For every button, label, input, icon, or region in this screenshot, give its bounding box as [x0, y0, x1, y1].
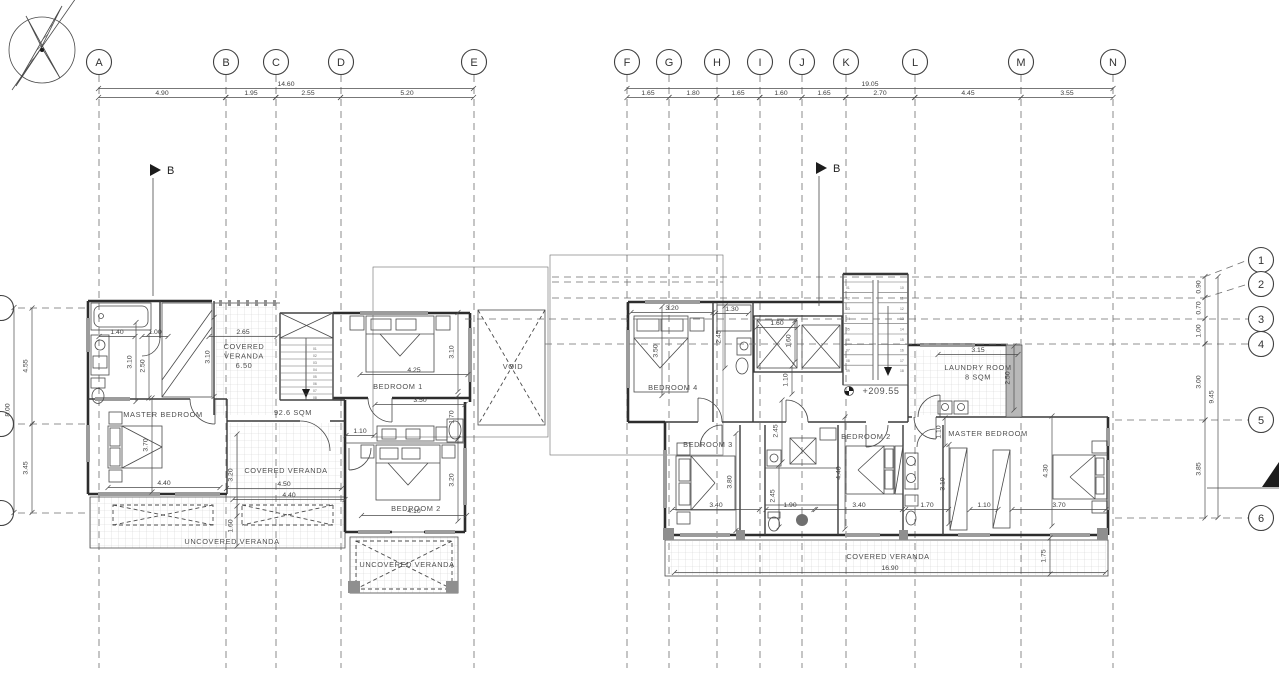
- svg-text:17: 17: [900, 359, 904, 363]
- dimension: 1.10: [344, 428, 377, 438]
- svg-text:3.15: 3.15: [971, 347, 984, 354]
- dimension: 1.10: [783, 364, 795, 397]
- svg-text:2.70: 2.70: [873, 90, 886, 97]
- svg-text:B: B: [833, 163, 840, 175]
- svg-text:BEDROOM 3: BEDROOM 3: [683, 440, 733, 449]
- room-label: BEDROOM 2: [391, 504, 441, 513]
- bathroom-fixtures: [91, 303, 151, 404]
- svg-text:4.30: 4.30: [1043, 464, 1050, 477]
- svg-text:1.75: 1.75: [1041, 549, 1048, 562]
- svg-text:16: 16: [900, 348, 904, 352]
- level-marker: [845, 387, 854, 396]
- svg-text:07: 07: [313, 389, 317, 393]
- svg-text:3.50: 3.50: [413, 397, 426, 404]
- svg-text:M: M: [1016, 57, 1025, 69]
- dimension: 2.45: [770, 463, 782, 530]
- room-label: +209.55: [863, 386, 900, 396]
- svg-text:N: N: [1109, 57, 1117, 69]
- svg-text:13: 13: [900, 317, 904, 321]
- north-arrow-icon: [9, 0, 76, 90]
- dimension: 2.45: [773, 398, 785, 465]
- svg-text:3.85: 3.85: [1196, 462, 1203, 475]
- svg-text:04: 04: [846, 317, 850, 321]
- svg-text:BEDROOM 2: BEDROOM 2: [391, 504, 441, 513]
- dimension: 4.90: [96, 90, 228, 100]
- svg-text:14: 14: [900, 328, 904, 332]
- grid-row-3: 3: [465, 307, 1274, 332]
- section-marker-B: B: [150, 164, 174, 296]
- grid-row-left-1: [0, 412, 88, 437]
- dimension: 1.65: [800, 90, 849, 100]
- svg-text:3.20: 3.20: [228, 468, 235, 481]
- svg-text:0.90: 0.90: [1196, 280, 1203, 293]
- svg-text:LAUNDRY ROOM: LAUNDRY ROOM: [944, 363, 1011, 372]
- dimension: 3.85: [1196, 418, 1208, 521]
- svg-text:03: 03: [313, 361, 317, 365]
- svg-text:15: 15: [900, 338, 904, 342]
- svg-text:3.40: 3.40: [852, 502, 865, 509]
- svg-text:4.40: 4.40: [836, 466, 843, 479]
- central-bath-fixtures: [767, 428, 836, 531]
- dimension: 1.10: [968, 502, 1001, 512]
- svg-text:+209.55: +209.55: [863, 386, 900, 396]
- floor-plan-canvas: ABCDEFGHIJKLMN12345614.604.901.952.555.2…: [0, 0, 1280, 675]
- dimension: 1.10: [936, 416, 948, 449]
- room-label: BEDROOM 2: [841, 432, 891, 441]
- svg-text:1.00: 1.00: [1196, 324, 1203, 337]
- covered-veranda-mid-floor: [229, 423, 343, 501]
- svg-text:02: 02: [313, 354, 317, 358]
- svg-text:02: 02: [846, 296, 850, 300]
- svg-text:J: J: [799, 57, 805, 69]
- room-label: BEDROOM 3: [683, 440, 733, 449]
- dimension: 1.70: [903, 502, 951, 512]
- svg-text:MASTER BEDROOM: MASTER BEDROOM: [948, 429, 1027, 438]
- dimension: 3.55: [1019, 90, 1116, 100]
- svg-text:1.60: 1.60: [770, 320, 783, 327]
- svg-text:1.10: 1.10: [936, 425, 943, 438]
- master-closets: [950, 448, 1010, 530]
- svg-text:4.90: 4.90: [155, 90, 168, 97]
- svg-text:I: I: [758, 57, 761, 69]
- svg-text:09: 09: [846, 369, 850, 373]
- svg-text:0.70: 0.70: [1196, 301, 1203, 314]
- grid-bubble-E: E: [462, 50, 487, 75]
- section-marker-B: B: [816, 162, 840, 306]
- room-label: MASTER BEDROOM: [948, 429, 1027, 438]
- svg-text:BEDROOM 2: BEDROOM 2: [841, 432, 891, 441]
- svg-text:06: 06: [846, 338, 850, 342]
- svg-text:BEDROOM 1: BEDROOM 1: [373, 382, 423, 391]
- grid-bubble-H: H: [705, 50, 730, 75]
- svg-text:05: 05: [313, 375, 317, 379]
- dimension: 3.40: [813, 502, 905, 512]
- grid-row-2: 2: [552, 272, 1274, 299]
- svg-text:3.40: 3.40: [709, 502, 722, 509]
- svg-text:11: 11: [900, 296, 904, 300]
- dimension: 3.70: [1010, 502, 1109, 512]
- svg-text:B: B: [167, 165, 174, 177]
- svg-text:3.10: 3.10: [127, 355, 134, 368]
- bed-bedroom1: [350, 316, 450, 372]
- svg-text:01: 01: [846, 286, 850, 290]
- svg-text:3.20: 3.20: [665, 305, 678, 312]
- svg-text:2.45: 2.45: [770, 489, 777, 502]
- svg-text:1.60: 1.60: [786, 334, 793, 347]
- dimension: 1.60: [758, 90, 805, 100]
- svg-text:H: H: [713, 57, 721, 69]
- svg-text:12: 12: [900, 307, 904, 311]
- svg-text:4.55: 4.55: [23, 359, 30, 372]
- svg-text:1.10: 1.10: [353, 428, 366, 435]
- staircase: [843, 274, 908, 385]
- room-label: UNCOVERED VERANDA: [184, 537, 279, 546]
- svg-text:9.45: 9.45: [1209, 390, 1216, 403]
- grid-bubble-J: J: [790, 50, 815, 75]
- svg-text:COVERED: COVERED: [224, 342, 265, 351]
- svg-text:2.55: 2.55: [301, 90, 314, 97]
- svg-text:05: 05: [846, 328, 850, 332]
- dimension: 2.55: [273, 90, 343, 100]
- svg-text:4: 4: [1258, 339, 1264, 351]
- svg-text:1.65: 1.65: [817, 90, 830, 97]
- svg-text:1.10: 1.10: [783, 373, 790, 386]
- dimension: 2.50: [140, 332, 152, 401]
- svg-text:4.25: 4.25: [407, 367, 420, 374]
- svg-text:3.20: 3.20: [449, 473, 456, 486]
- bed-bedroom2: [361, 445, 455, 500]
- grid-row-1: 1: [552, 248, 1274, 278]
- dimension: 0.70: [1196, 295, 1208, 321]
- svg-text:07: 07: [846, 348, 850, 352]
- svg-text:1.65: 1.65: [731, 90, 744, 97]
- svg-text:4.40: 4.40: [157, 480, 170, 487]
- master-bath-fixtures: [905, 453, 918, 525]
- svg-text:1: 1: [1258, 255, 1264, 267]
- grid-bubble-L: L: [903, 50, 928, 75]
- svg-text:14.60: 14.60: [277, 81, 294, 88]
- svg-text:6: 6: [1258, 513, 1264, 525]
- dimension: 5.20: [338, 90, 476, 100]
- svg-text:1.95: 1.95: [244, 90, 257, 97]
- svg-text:08: 08: [313, 396, 317, 400]
- svg-text:1.65: 1.65: [641, 90, 654, 97]
- bed-bedroom2-right: [846, 446, 903, 494]
- svg-text:8 SQM: 8 SQM: [965, 373, 991, 382]
- room-label: BEDROOM 4: [648, 383, 698, 392]
- svg-text:2.45: 2.45: [773, 424, 780, 437]
- svg-text:2.50: 2.50: [140, 359, 147, 372]
- dimension: 1.00: [140, 329, 171, 339]
- svg-text:D: D: [337, 57, 345, 69]
- svg-text:3: 3: [1258, 314, 1264, 326]
- dimension: 3.40: [670, 502, 762, 512]
- dimension: 1.40: [97, 329, 138, 339]
- svg-text:A: A: [95, 57, 103, 69]
- dimension: 1.80: [667, 90, 720, 100]
- svg-text:E: E: [470, 57, 477, 69]
- room-label: 92.6 SQM: [274, 408, 312, 417]
- grid-bubble-N: N: [1101, 50, 1126, 75]
- svg-text:L: L: [912, 57, 918, 69]
- svg-text:B: B: [222, 57, 229, 69]
- svg-text:4.45: 4.45: [961, 90, 974, 97]
- svg-text:04: 04: [313, 368, 317, 372]
- dimension: 1.65: [625, 90, 672, 100]
- svg-text:BEDROOM 4: BEDROOM 4: [648, 383, 698, 392]
- walk-in-closet: [162, 303, 212, 397]
- svg-text:G: G: [665, 57, 674, 69]
- svg-text:1.90: 1.90: [783, 502, 796, 509]
- dimension: 3.20: [449, 437, 461, 524]
- grid-bubble-F: F: [615, 50, 640, 75]
- dimension: 1.30: [713, 306, 751, 316]
- svg-text:1.60: 1.60: [774, 90, 787, 97]
- svg-text:3.10: 3.10: [205, 350, 212, 363]
- svg-text:5: 5: [1258, 415, 1264, 427]
- svg-text:3.10: 3.10: [940, 477, 947, 490]
- svg-text:10: 10: [900, 286, 904, 290]
- dimension: 1.95: [224, 90, 279, 100]
- grid-bubble-M: M: [1009, 50, 1034, 75]
- grid-bubble-B: B: [214, 50, 239, 75]
- svg-text:5.20: 5.20: [400, 90, 413, 97]
- grid-bubble-K: K: [834, 50, 859, 75]
- dimension: 14.60: [96, 81, 476, 91]
- grid-bubble-A: A: [87, 50, 112, 75]
- svg-text:1.60: 1.60: [228, 519, 235, 532]
- svg-text:06: 06: [313, 382, 317, 386]
- dimension: 1.65: [714, 90, 762, 100]
- svg-text:18: 18: [900, 369, 904, 373]
- svg-text:3.70: 3.70: [143, 438, 150, 451]
- room-label: BEDROOM 1: [373, 382, 423, 391]
- svg-text:3.50: 3.50: [653, 344, 660, 357]
- svg-text:1.30: 1.30: [725, 306, 738, 313]
- svg-text:19.05: 19.05: [861, 81, 878, 88]
- grid-bubble-D: D: [329, 50, 354, 75]
- svg-text:1.70: 1.70: [920, 502, 933, 509]
- dimension: 8.00: [5, 305, 17, 515]
- svg-text:03: 03: [846, 307, 850, 311]
- svg-text:1.40: 1.40: [110, 329, 123, 336]
- svg-text:16.90: 16.90: [881, 565, 898, 572]
- floor-outline-frames: [373, 255, 723, 455]
- svg-text:8.00: 8.00: [5, 403, 12, 416]
- svg-text:2: 2: [1258, 279, 1264, 291]
- svg-text:2.50: 2.50: [1005, 371, 1012, 384]
- svg-text:6.50: 6.50: [236, 361, 253, 370]
- svg-text:1.80: 1.80: [686, 90, 699, 97]
- svg-text:1.70: 1.70: [449, 410, 456, 423]
- dimension: 4.40: [106, 480, 223, 490]
- svg-text:3.00: 3.00: [1196, 375, 1203, 388]
- svg-text:01: 01: [313, 347, 317, 351]
- grid-bubble-G: G: [657, 50, 682, 75]
- svg-text:2.65: 2.65: [236, 329, 249, 336]
- svg-text:VOID: VOID: [503, 362, 523, 371]
- dimension: 9.45: [1209, 274, 1221, 520]
- grid-bubble-I: I: [748, 50, 773, 75]
- svg-text:3.80: 3.80: [727, 475, 734, 488]
- room-label: COVERED VERANDA: [846, 552, 929, 561]
- svg-text:92.6 SQM: 92.6 SQM: [274, 408, 312, 417]
- dimension: 3.45: [23, 421, 35, 515]
- room-label: UNCOVERED VERANDA: [359, 560, 454, 569]
- dimension: 3.20: [629, 305, 716, 315]
- svg-text:4.40: 4.40: [282, 492, 295, 499]
- svg-text:COVERED VERANDA: COVERED VERANDA: [846, 552, 929, 561]
- svg-text:F: F: [624, 57, 631, 69]
- svg-text:08: 08: [846, 359, 850, 363]
- svg-text:COVERED VERANDA: COVERED VERANDA: [244, 466, 327, 475]
- room-label: MASTER BEDROOM: [123, 410, 202, 419]
- bed-master: [108, 412, 162, 482]
- dimension: 4.55: [23, 306, 35, 427]
- dimension: 0.90: [1196, 274, 1208, 300]
- svg-text:MASTER BEDROOM: MASTER BEDROOM: [123, 410, 202, 419]
- grid-row-6: 6: [1115, 506, 1274, 531]
- svg-text:3.55: 3.55: [1060, 90, 1073, 97]
- svg-text:3.45: 3.45: [23, 461, 30, 474]
- room-label: VOID: [503, 362, 523, 371]
- svg-text:2.45: 2.45: [716, 330, 723, 343]
- dimension: 1.00: [1196, 316, 1208, 346]
- svg-text:3.70: 3.70: [1052, 502, 1065, 509]
- svg-text:K: K: [842, 57, 850, 69]
- dimension: 4.45: [913, 90, 1024, 100]
- grid-row-5: 5: [1115, 408, 1274, 433]
- room-label: COVERED VERANDA: [244, 466, 327, 475]
- svg-text:UNCOVERED VERANDA: UNCOVERED VERANDA: [184, 537, 279, 546]
- grid-bubble-C: C: [264, 50, 289, 75]
- dimension: 3.00: [1196, 342, 1208, 423]
- dimension: 2.70: [843, 90, 917, 100]
- svg-text:3.10: 3.10: [449, 345, 456, 358]
- dimension: 3.10: [127, 320, 139, 404]
- floor-plan-sheet: ABCDEFGHIJKLMN12345614.604.901.952.555.2…: [0, 0, 1280, 675]
- dimension: 1.70: [449, 393, 461, 441]
- svg-text:VERANDA: VERANDA: [224, 352, 264, 361]
- svg-text:4.50: 4.50: [277, 481, 290, 488]
- dimension: 1.60: [786, 318, 798, 364]
- svg-text:1.10: 1.10: [977, 502, 990, 509]
- svg-text:C: C: [272, 57, 280, 69]
- svg-text:UNCOVERED VERANDA: UNCOVERED VERANDA: [359, 560, 454, 569]
